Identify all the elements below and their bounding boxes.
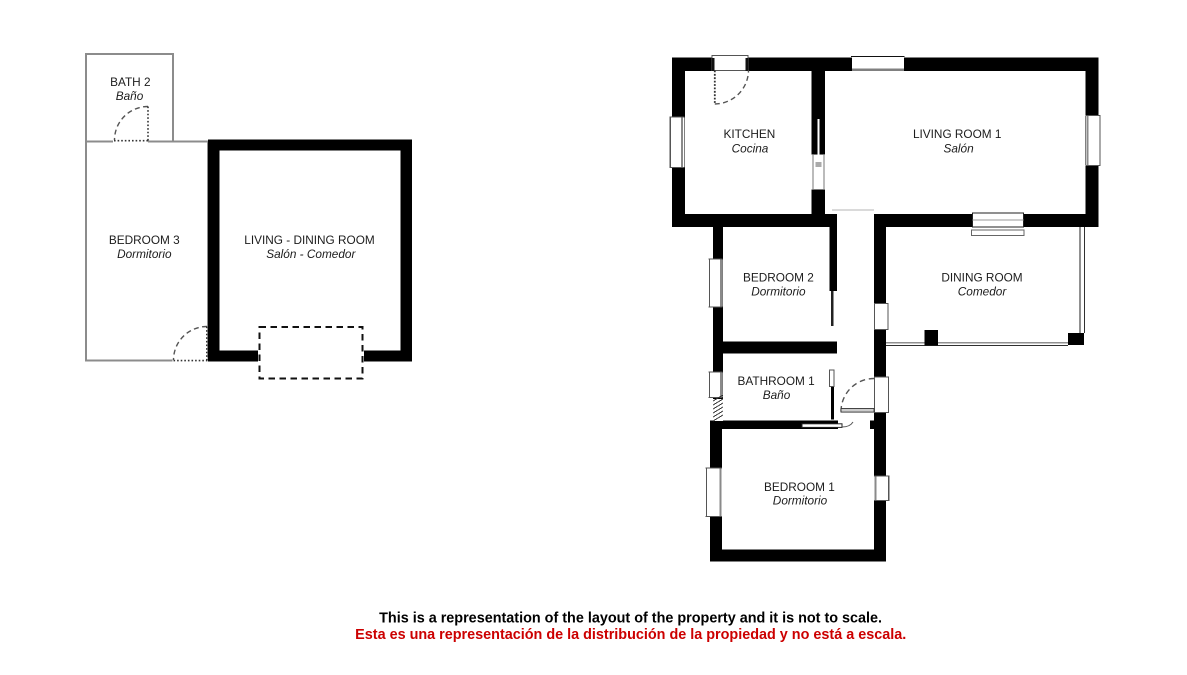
svg-text:BEDROOM 3: BEDROOM 3 <box>109 233 180 247</box>
svg-text:Dormitorio: Dormitorio <box>117 247 172 261</box>
svg-text:LIVING ROOM 1: LIVING ROOM 1 <box>913 127 1002 141</box>
svg-text:Esta es una representación de: Esta es una representación de la distrib… <box>355 627 906 643</box>
svg-text:BATH 2: BATH 2 <box>110 75 150 89</box>
svg-text:Baño: Baño <box>116 89 144 103</box>
svg-text:BEDROOM 2: BEDROOM 2 <box>743 271 814 285</box>
svg-text:Dormitorio: Dormitorio <box>751 285 806 299</box>
svg-text:Salón: Salón <box>944 141 975 155</box>
svg-text:This is a representation of th: This is a representation of the layout o… <box>379 610 882 626</box>
svg-text:Comedor: Comedor <box>958 285 1008 299</box>
svg-text:BEDROOM 1: BEDROOM 1 <box>764 480 835 494</box>
svg-text:Cocina: Cocina <box>732 141 769 155</box>
svg-text:DINING ROOM: DINING ROOM <box>941 271 1022 285</box>
svg-text:LIVING - DINING ROOM: LIVING - DINING ROOM <box>244 233 374 247</box>
svg-text:Dormitorio: Dormitorio <box>773 494 828 508</box>
svg-text:BATHROOM 1: BATHROOM 1 <box>738 374 815 388</box>
svg-text:Baño: Baño <box>763 388 791 402</box>
svg-text:KITCHEN: KITCHEN <box>724 127 776 141</box>
svg-text:Salón - Comedor: Salón - Comedor <box>266 247 356 261</box>
